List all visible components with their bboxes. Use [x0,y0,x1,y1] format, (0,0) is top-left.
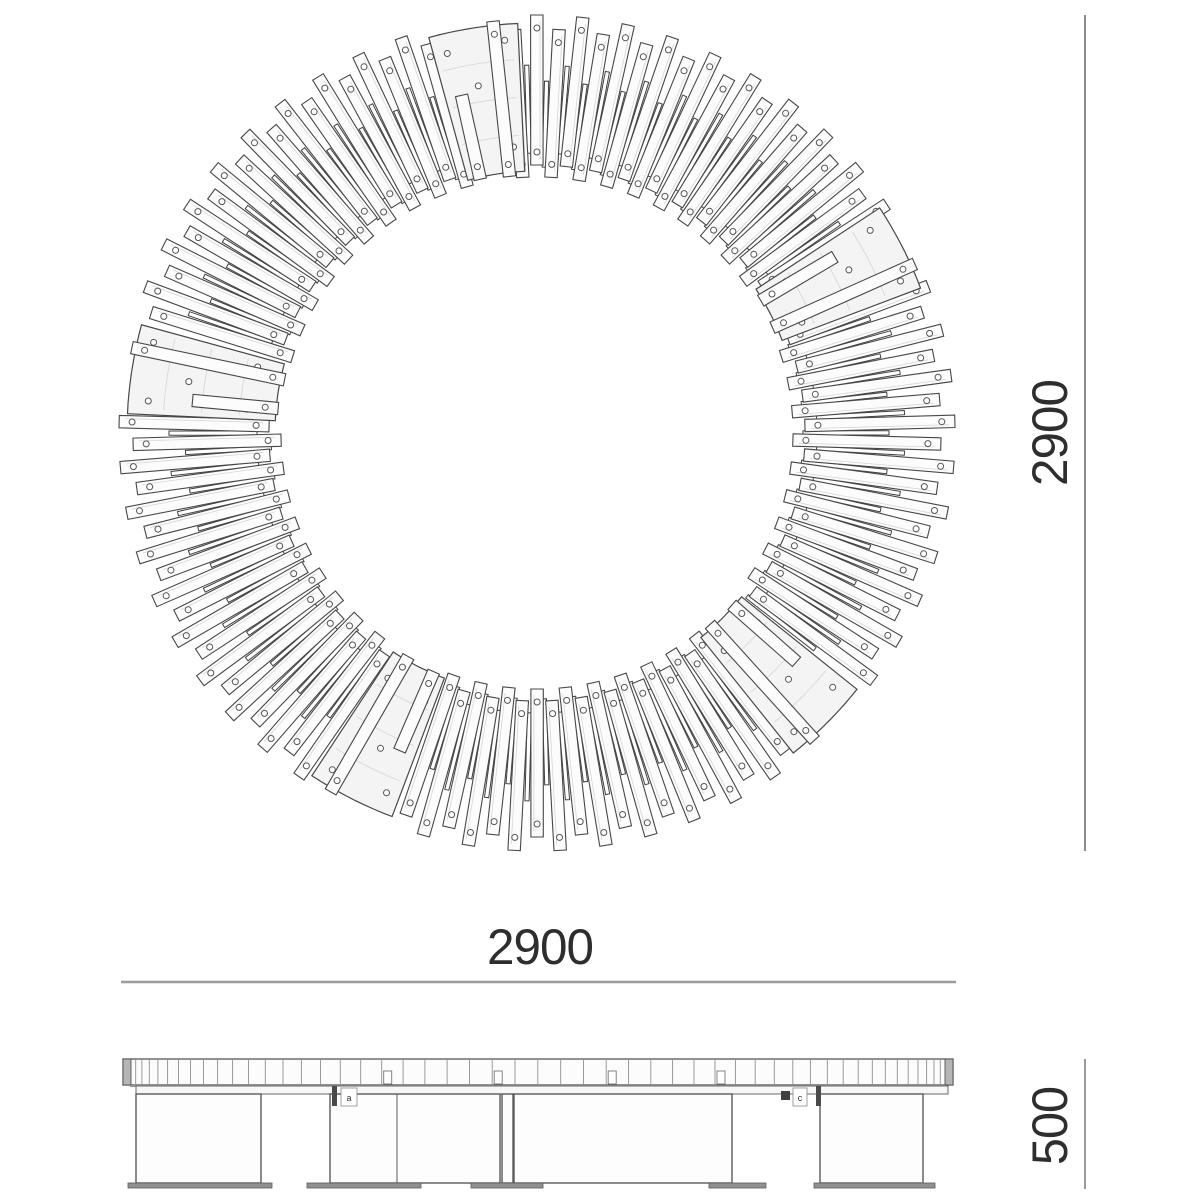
callout-a-label: a [346,1093,351,1103]
elevation-height-dimension-label: 500 [1022,1087,1078,1165]
plan-width-dimension-label: 2900 [487,919,593,975]
drawing-canvas: 2900 2900 500 a c [0,0,1200,1200]
plan-diameter-dimension-label: 2900 [1022,380,1078,486]
plan-view-circular-bench [119,15,955,851]
callout-c-label: c [798,1093,803,1103]
technical-drawing: 2900 2900 500 a c [0,0,1200,1200]
side-elevation-view [123,1059,953,1188]
